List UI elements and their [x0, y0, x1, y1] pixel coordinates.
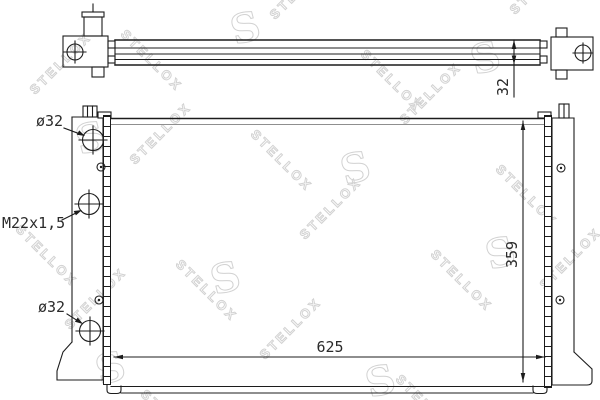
- watermark-text: STELLOX: [248, 127, 316, 195]
- leader-arrow-icon: [74, 210, 82, 215]
- right-tank-hole-dot: [560, 167, 562, 169]
- dimension-width: 625: [114, 338, 545, 359]
- right-tank-hole-dot: [559, 299, 561, 301]
- watermark-text: STELLOX: [27, 29, 95, 97]
- dimension-height: 359: [503, 121, 525, 382]
- left-tank-hole-dot: [98, 299, 100, 301]
- technical-drawing-page: STELLOX STELLOX STELLOX STELLOX STELLOX …: [0, 0, 600, 400]
- dim-height-label: 359: [503, 241, 521, 268]
- dim-depth-label: 32: [494, 78, 512, 96]
- watermark-text: STELLOX: [393, 372, 461, 400]
- left-lower-stub: [92, 67, 104, 77]
- right-upper-stub: [556, 28, 567, 37]
- right-tab-top: [540, 41, 547, 48]
- arrow-right-icon: [536, 355, 545, 360]
- right-lower-stub: [556, 70, 567, 79]
- arrow-up-icon: [512, 40, 517, 49]
- watermark-text: STELLOX: [118, 27, 186, 95]
- arrow-down-icon: [521, 373, 526, 382]
- watermark-text: STELLOX: [257, 294, 325, 362]
- left-pipe-flange: [82, 12, 104, 17]
- left-tab-bottom: [108, 56, 115, 63]
- left-tank-hole-dot: [100, 166, 102, 168]
- left-tab-top: [108, 41, 115, 48]
- watermark-text: STELLOX: [127, 99, 195, 167]
- right-tab-bottom: [540, 56, 547, 63]
- arrow-up-icon: [521, 121, 526, 130]
- drawing-layer: 32: [2, 4, 593, 394]
- watermark-logo-icon: S: [225, 2, 265, 55]
- port-top-label: ø32: [36, 112, 63, 130]
- dim-width-label: 625: [316, 338, 343, 356]
- port-bottom-label: ø32: [38, 298, 65, 316]
- right-foot: [552, 352, 592, 385]
- radiator-technical-drawing: STELLOX STELLOX STELLOX STELLOX STELLOX …: [0, 0, 600, 400]
- watermark-text: STELLOX: [507, 0, 575, 17]
- thread-label: M22x1,5: [2, 214, 65, 232]
- watermark-text: STELLOX: [267, 0, 335, 22]
